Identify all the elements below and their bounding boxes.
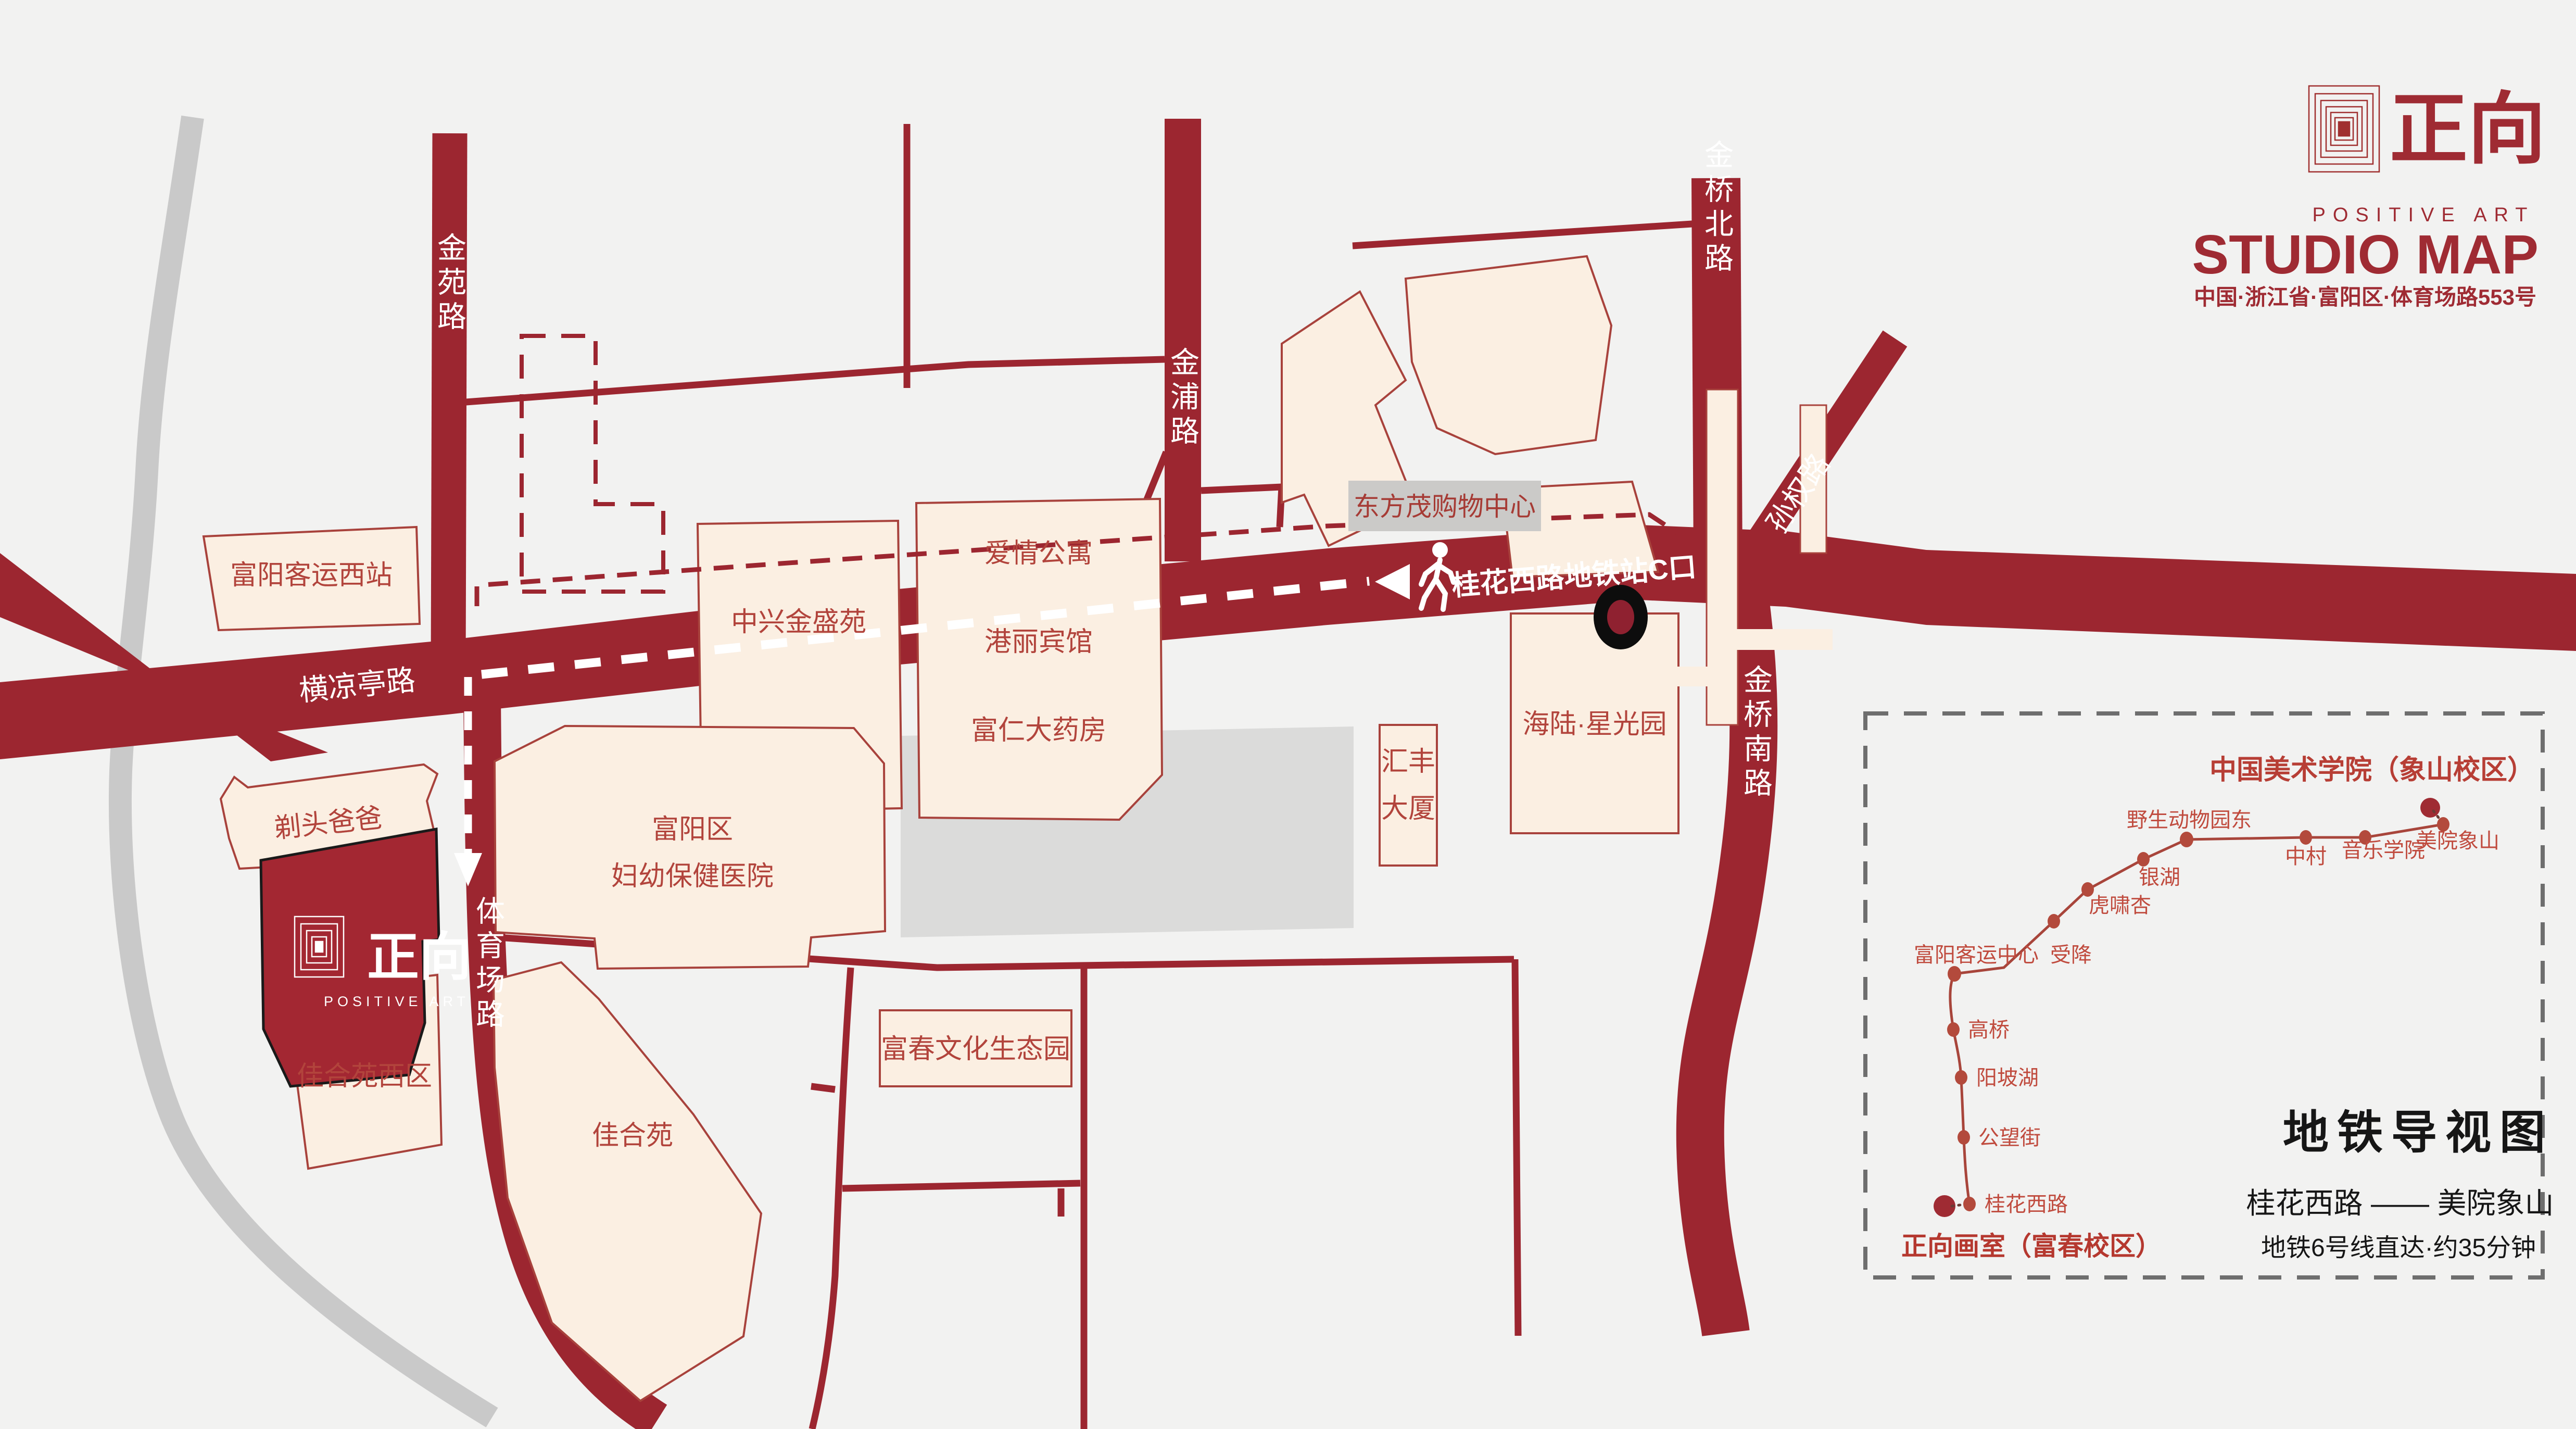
label-mall: 东方茂购物中心 [1354, 492, 1536, 521]
label-jiaheyuan-west: 佳合苑西区 [297, 1061, 432, 1092]
label-road-jinyuan: 金苑路 [434, 232, 466, 335]
road-jinyuan [448, 133, 450, 672]
panel-origin-label: 正向画室（富春校区） [1901, 1232, 2162, 1261]
building-mall-north [1406, 256, 1611, 454]
brand-name: 正向 [2390, 85, 2546, 173]
studio-address: 中国·浙江省·富阳区·体育场路553号 [2194, 285, 2536, 309]
station-shouxiang: 受降 [2050, 944, 2092, 967]
label-hotel: 港丽宾馆 [984, 627, 1093, 657]
label-hospital-2: 妇幼保健医院 [611, 861, 774, 892]
studio-sub: POSITIVE ART [324, 994, 470, 1009]
dest-terminal-dot [2420, 798, 2440, 818]
page-title: STUDIO MAP [2192, 224, 2539, 285]
brand-subname: POSITIVE ART [2312, 204, 2534, 226]
label-west-station: 富阳客运西站 [230, 560, 393, 591]
panel-title: 地铁导视图 [2283, 1107, 2554, 1158]
metro-entrance-marker [1594, 585, 1648, 649]
header: 正向 POSITIVE ART STUDIO MAP 中国·浙江省·富阳区·体育… [2192, 85, 2546, 309]
label-pharmacy: 富仁大药房 [971, 716, 1106, 746]
station-gaoqiao: 高桥 [1968, 1019, 2010, 1042]
panel-route: 桂花西路 —— 美院象山 [2246, 1187, 2554, 1220]
station-guihuaxilu: 桂花西路 [1985, 1193, 2068, 1216]
station-zhongcun: 中村 [2285, 845, 2327, 868]
label-jiaheyuan: 佳合苑 [592, 1121, 673, 1151]
map-canvas: 正向 POSITIVE ART 富阳客运西站 中兴金盛苑 爱情公寓 港丽宾馆 富… [0, 0, 2576, 1429]
building-hospital [495, 726, 885, 969]
building-jiaheyuan [494, 962, 761, 1401]
station-music-academy: 音乐学院 [2342, 839, 2425, 862]
label-road-jinqiao-north: 金桥北路 [1701, 140, 1734, 277]
label-apartment: 爱情公寓 [984, 538, 1093, 569]
label-road-jinpu: 金浦路 [1167, 347, 1199, 450]
label-fuchun-park: 富春文化生态园 [881, 1034, 1070, 1064]
station-huxiaoxing: 虎啸杏 [2089, 894, 2151, 917]
station-gongwangjie: 公望街 [1978, 1126, 2041, 1149]
label-road-tiyuchang: 体育场路 [472, 896, 505, 1033]
label-road-jinqiao-south: 金桥南路 [1740, 665, 1773, 802]
station-yangpohu: 阳坡湖 [1976, 1067, 2039, 1089]
panel-note: 地铁6号线直达·约35分钟 [2261, 1234, 2536, 1262]
building-dashed-outline [522, 336, 663, 592]
station-meiyuan-xiangshan: 美院象山 [2416, 830, 2499, 853]
label-huifeng-1: 汇丰 [1381, 747, 1435, 777]
label-hospital-1: 富阳区 [652, 814, 733, 845]
panel-dest-label: 中国美术学院（象山校区） [2209, 755, 2534, 785]
label-huifeng-2: 大厦 [1381, 794, 1435, 824]
seal-icon [2309, 86, 2379, 172]
station-safari-east: 野生动物园东 [2127, 809, 2252, 832]
station-fuyang-bus-center: 富阳客运中心 [1914, 944, 2039, 967]
label-zhongxing: 中兴金盛苑 [731, 607, 866, 637]
label-hailu: 海陆·星光园 [1522, 709, 1666, 739]
metro-panel: 中国美术学院（象山校区） 地铁导视图 桂花西路 —— 美院象山 地铁6号线直达·… [1865, 713, 2554, 1277]
station-yinhu: 银湖 [2139, 866, 2180, 889]
studio-name: 正向 [367, 928, 471, 986]
studio-map-poster: { "header": { "logo_mark": "seal-icon", … [0, 0, 2576, 1429]
